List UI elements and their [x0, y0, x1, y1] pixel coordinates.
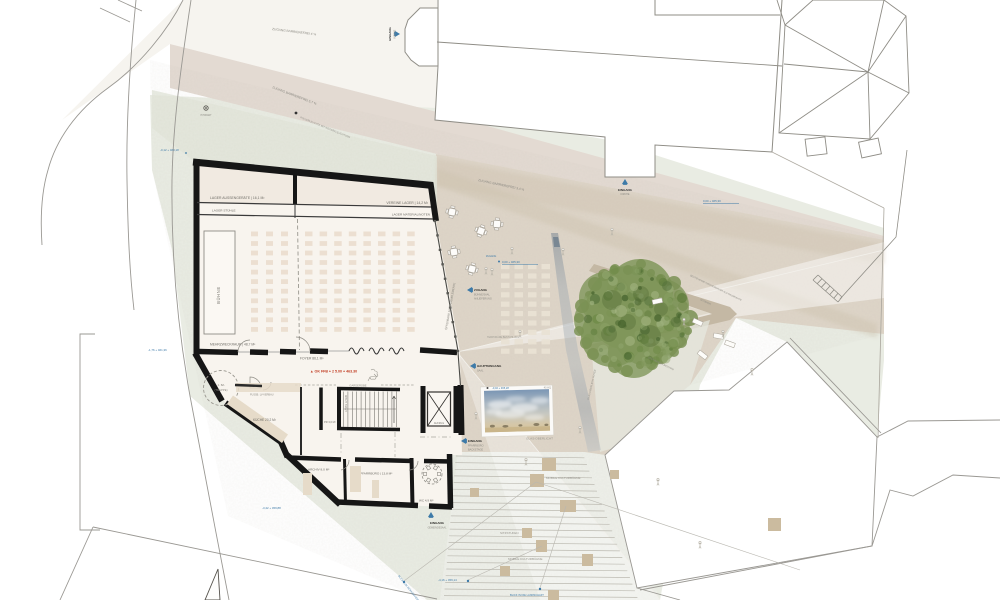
svg-text:GLAS-OBERLICHT: GLAS-OBERLICHT	[526, 437, 553, 441]
svg-text:-1,76 + 461,36: -1,76 + 461,36	[148, 348, 167, 352]
svg-text:WC 4,9 M²: WC 4,9 M²	[419, 499, 433, 503]
svg-text:MOBILE KULTURBÜHNE: MOBILE KULTURBÜHNE	[508, 557, 542, 561]
svg-text:2. BA: 2. BA	[218, 383, 225, 387]
svg-text:HAUPTEINGANG: HAUPTEINGANG	[477, 364, 502, 368]
svg-text:-0,02 + 465,28: -0,02 + 465,28	[492, 386, 509, 390]
svg-text:BLICK IN DIE LANDSCHAFT: BLICK IN DIE LANDSCHAFT	[510, 593, 544, 597]
svg-text:-4,16 + 459,14: -4,16 + 459,14	[438, 578, 457, 582]
svg-text:GEMEINDESAAL: GEMEINDESAAL	[428, 527, 448, 530]
svg-text:AUFZUG: AUFZUG	[434, 422, 444, 425]
svg-text:LAGER AUSSENGERÄTE | 16,1 M²: LAGER AUSSENGERÄTE | 16,1 M²	[210, 196, 265, 200]
svg-text:EINGANG: EINGANG	[468, 439, 483, 443]
svg-text:VEREINE LAGER | 14,2 M²: VEREINE LAGER | 14,2 M²	[386, 201, 428, 205]
svg-text:KIRCHE: KIRCHE	[395, 29, 397, 38]
svg-text:EINGANG: EINGANG	[430, 521, 445, 525]
svg-text:ANLIEFERUNG: ANLIEFERUNG	[474, 298, 492, 301]
svg-text:SITZSTUFEN: SITZSTUFEN	[500, 531, 519, 535]
svg-text:HYDRANT: HYDRANT	[200, 114, 212, 117]
svg-text:LAGER STÜHLE: LAGER STÜHLE	[212, 208, 236, 212]
svg-text:(TREPPE): (TREPPE)	[214, 388, 227, 392]
svg-text:40 HQ: 40 HQ	[544, 387, 551, 390]
svg-text:BÜHNE/SAAL: BÜHNE/SAAL	[474, 294, 490, 297]
svg-text:GARDEROBE: GARDEROBE	[349, 383, 366, 387]
svg-text:EINGANG: EINGANG	[388, 27, 392, 41]
svg-text:PR 3,6 M²: PR 3,6 M²	[324, 420, 336, 424]
svg-text:SAAL: SAAL	[477, 370, 484, 373]
svg-text:ZUGANG: ZUGANG	[486, 255, 496, 258]
svg-text:0,00 + 465,30: 0,00 + 465,30	[703, 199, 721, 203]
svg-text:KIRCHE: KIRCHE	[620, 193, 629, 196]
svg-text:17 STG 17,6/28: 17 STG 17,6/28	[345, 394, 348, 412]
svg-text:LAGER MATERIAL/NOTEN: LAGER MATERIAL/NOTEN	[392, 213, 430, 217]
svg-text:TEMPORÄRE BESTUHLUNG: TEMPORÄRE BESTUHLUNG	[487, 336, 519, 339]
svg-text:BACKSTAGE: BACKSTAGE	[468, 449, 483, 452]
svg-text:EINGANG: EINGANG	[618, 188, 633, 192]
svg-text:MEHRZWECKRAUM | 48,7 M²: MEHRZWECKRAUM | 48,7 M²	[210, 343, 256, 347]
svg-text:-0,12 + 463,18: -0,12 + 463,18	[160, 148, 179, 152]
svg-text:-3,42 + 459,88: -3,42 + 459,88	[262, 506, 281, 510]
svg-text:ARCHIV 8,0 M²: ARCHIV 8,0 M²	[308, 468, 329, 472]
svg-text:FOYER 86,1 M²: FOYER 86,1 M²	[300, 357, 324, 361]
svg-text:PFARRBÜRO: PFARRBÜRO	[468, 445, 484, 448]
svg-text:MOBILE KULTURBÜHNE: MOBILE KULTURBÜHNE	[546, 476, 580, 480]
svg-text:FUSSB. LV-VERBAU: FUSSB. LV-VERBAU	[250, 394, 274, 397]
svg-text:ZUGANG: ZUGANG	[474, 288, 488, 292]
svg-text:0,00 + 465,30: 0,00 + 465,30	[502, 260, 520, 264]
svg-text:BÜHNE: BÜHNE	[216, 286, 221, 304]
svg-text:KÜCHE 20,2 M²: KÜCHE 20,2 M²	[253, 418, 276, 422]
svg-text:▲ OK FFB + 2 5.00 + 463.30: ▲ OK FFB + 2 5.00 + 463.30	[310, 370, 357, 374]
svg-text:PFARRBÜRO | 13,8 M²: PFARRBÜRO | 13,8 M²	[360, 472, 392, 476]
